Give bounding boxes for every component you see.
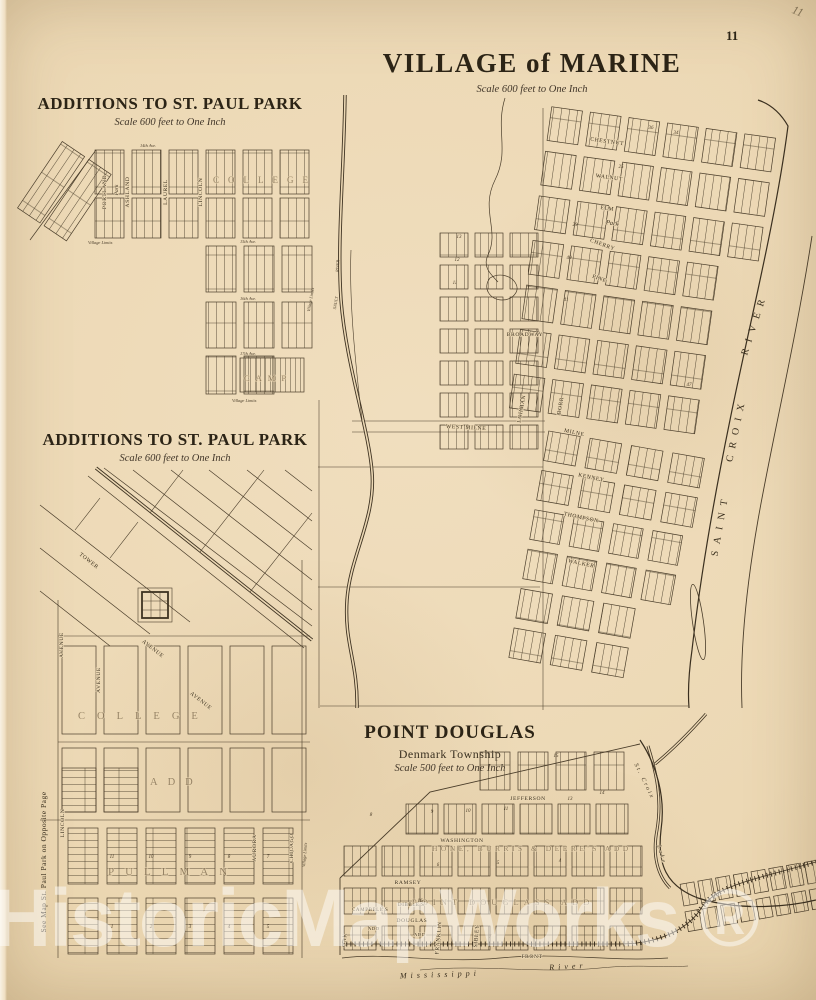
map-block — [695, 173, 730, 211]
label-river: River — [548, 961, 587, 972]
map-block — [619, 485, 656, 520]
street-label-ramsey: RAMSEY — [395, 880, 422, 886]
block-number: 11 — [504, 807, 509, 812]
street-label-jefferson: JEFFERSON — [510, 796, 546, 802]
block-number: 41 — [564, 298, 569, 303]
map-block — [520, 804, 552, 834]
map-block — [518, 752, 548, 790]
label-14th-ave: 14th Ave. — [140, 143, 156, 148]
map-block — [740, 134, 775, 172]
map-block — [510, 297, 538, 321]
block-number: 40 — [567, 256, 573, 261]
plat-blocks-north — [509, 107, 775, 439]
map-block — [243, 150, 272, 194]
map-block — [751, 869, 769, 893]
label-village-limits: Village Limits — [88, 240, 113, 245]
map-block — [244, 302, 274, 348]
map-block — [626, 446, 663, 481]
railroad-track — [340, 95, 373, 708]
map-block — [599, 603, 636, 638]
block-number: 11 — [110, 855, 115, 860]
block-number: 7 — [489, 935, 492, 940]
map-block — [406, 804, 438, 834]
map-block — [703, 906, 720, 928]
map-block — [641, 570, 676, 605]
map-block — [556, 752, 586, 790]
map-block — [593, 340, 628, 378]
map-block — [610, 888, 642, 914]
label-village-limits: Village Limits — [232, 398, 257, 403]
street-label-park: Park — [114, 184, 120, 196]
map-block — [206, 198, 235, 238]
street-label-tower: TOWER — [78, 552, 100, 571]
street-label-avenue: AVENUE — [96, 667, 102, 693]
block-number: 11 — [453, 281, 458, 286]
map-block — [280, 198, 309, 238]
map-block — [230, 748, 264, 812]
map-block — [596, 804, 628, 834]
label-campbells: CAMPBELL'S — [352, 908, 388, 913]
label-pullman: PULLMAN — [108, 866, 238, 878]
label-park: Park — [604, 219, 619, 228]
map-block — [95, 198, 124, 238]
map-block — [547, 107, 582, 145]
map-block — [602, 563, 637, 598]
map-block — [132, 198, 161, 238]
street-label-avenue: AVENUE — [59, 632, 65, 658]
map-block — [280, 150, 309, 194]
map-block — [650, 212, 685, 250]
street-label-lincoln: LINCOLN — [60, 809, 66, 838]
map-block — [444, 804, 476, 834]
label-add: ADD. — [414, 932, 428, 937]
plat-blocks-south — [509, 431, 705, 685]
label-15th-ave: 15th Ave. — [240, 239, 256, 244]
map-block — [668, 453, 705, 488]
map-block — [510, 233, 538, 257]
map-block — [548, 380, 583, 418]
map-block — [610, 926, 642, 950]
map-block — [644, 257, 679, 295]
label-st-croix: St. Croix — [633, 763, 656, 801]
map-block — [608, 524, 643, 559]
map-block — [482, 804, 514, 834]
map-block — [272, 748, 306, 812]
map-block — [475, 329, 503, 353]
map-block — [206, 302, 236, 348]
map-block — [440, 297, 468, 321]
map-block — [272, 646, 306, 734]
building-block — [142, 592, 168, 618]
map-block — [561, 290, 596, 328]
map-block — [537, 470, 574, 505]
map-block — [638, 301, 673, 339]
map-block — [557, 596, 594, 631]
river-name-river: RIVER — [739, 292, 770, 357]
map-block — [605, 251, 640, 289]
river-shore — [342, 956, 668, 960]
map-block — [554, 335, 589, 373]
street-label-portland: PORTLAND — [102, 175, 108, 209]
map-block — [480, 752, 510, 790]
block-number: 34 — [674, 131, 680, 136]
label-17th-ave: 17th Ave. — [240, 351, 256, 356]
street-label-chicago: CHICAGO — [289, 833, 295, 863]
street-label-laurel: LAUREL — [163, 179, 169, 205]
label-point-douglass-add: POINT DOUGLASS ADD — [412, 897, 594, 907]
river-island — [687, 584, 708, 661]
label-mississippi: Mississippi — [399, 969, 480, 981]
map-block — [68, 898, 98, 954]
block-number: 47 — [687, 383, 693, 388]
railroad-label: RIVER — [335, 259, 341, 273]
map-block — [544, 431, 581, 466]
street-label-broadway: BROADWAY — [507, 332, 544, 338]
map-block — [632, 346, 667, 384]
map-additions-mid: 111098712345 TOWER AVENUE AVENUE AVENUE … — [39, 468, 312, 958]
map-additions-top: PORTLAND Park ASHLAND LAUREL LINCOLN COL… — [18, 142, 317, 403]
street-label-aurora: AURORA — [252, 834, 258, 861]
label-college: COLLEGE — [78, 711, 210, 722]
map-block — [720, 903, 737, 925]
map-block — [587, 385, 622, 423]
map-block — [206, 246, 236, 292]
block-number: 10 — [466, 809, 472, 814]
map-block — [716, 876, 734, 900]
map-block — [594, 752, 624, 790]
map-village-marine: CHESTNUT WALNUT ELM Park CHERRY PINE BRO… — [318, 95, 812, 710]
map-block — [244, 246, 274, 292]
label-hone-burris-add: HONE, BURRIS & DEERE'S ADD — [432, 844, 632, 853]
map-block — [657, 168, 692, 206]
map-block — [475, 265, 503, 289]
label-camp: CAMP — [244, 373, 292, 383]
map-block — [475, 233, 503, 257]
map-block — [738, 900, 755, 922]
block-number: 29 — [573, 223, 579, 228]
map-block — [663, 123, 698, 161]
street-label-lincoln: LINCOLN — [198, 178, 204, 207]
map-block — [510, 425, 538, 449]
map-block — [664, 396, 699, 434]
block-number: 13 — [457, 235, 463, 240]
block-number: 25 — [619, 165, 625, 170]
railroad-track — [340, 95, 373, 708]
map-block — [585, 438, 622, 473]
map-block — [648, 531, 683, 566]
map-block — [728, 223, 763, 261]
street-label-oak: OAK — [341, 933, 348, 947]
label-add: ADD — [150, 777, 203, 788]
map-block — [382, 846, 414, 876]
street-label-avenue: AVENUE — [141, 639, 165, 660]
shoreline-east — [742, 236, 812, 708]
street-label-douglas: DOUGLAS — [397, 918, 428, 924]
map-block — [344, 846, 376, 876]
side-note: See Map St. Paul Park on Opposite Page — [39, 791, 48, 932]
map-block — [624, 118, 659, 156]
map-block — [510, 361, 538, 385]
railroad-label: SAULT — [332, 295, 339, 309]
map-block — [661, 492, 698, 527]
label-add: ADD — [368, 926, 380, 931]
map-point-douglas: JEFFERSON WASHINGTON RAMSEY DOUGLAS FRON… — [340, 714, 816, 980]
map-block — [169, 150, 198, 194]
map-block — [206, 356, 236, 394]
street-label-avenue: AVENUE — [189, 691, 213, 712]
map-block — [132, 150, 161, 194]
map-block — [243, 198, 272, 238]
map-block — [169, 198, 198, 238]
map-block — [734, 178, 769, 216]
map-block — [475, 361, 503, 385]
map-block — [676, 307, 711, 345]
map-block — [523, 549, 558, 584]
block-number: 15 — [554, 754, 560, 759]
map-block — [206, 150, 235, 194]
map-block — [440, 233, 468, 257]
map-block — [769, 866, 787, 890]
map-block — [230, 646, 264, 734]
cross-streets — [75, 470, 312, 592]
map-block — [541, 151, 576, 189]
map-block — [509, 628, 546, 663]
map-block — [440, 361, 468, 385]
street-label-ashland: ASHLAND — [125, 177, 131, 208]
map-block — [440, 393, 468, 417]
label-college: COLLEGE — [213, 175, 317, 185]
block-number: 10 — [149, 855, 155, 860]
building-detail — [142, 592, 168, 618]
map-block — [535, 196, 570, 234]
map-block — [599, 296, 634, 334]
map-block — [625, 390, 660, 428]
river-name-saint: SAINT — [710, 492, 732, 557]
block-number: 13 — [568, 797, 574, 802]
map-block — [62, 768, 96, 812]
label-16th-ave: 16th Ave. — [240, 296, 256, 301]
map-block — [282, 246, 312, 292]
block-number: 16 — [418, 899, 424, 904]
map-block — [592, 643, 629, 678]
map-block — [578, 478, 615, 513]
map-block — [683, 262, 718, 300]
map-block — [475, 297, 503, 321]
map-block — [68, 828, 98, 884]
map-block — [558, 804, 590, 834]
block-number: 1 — [111, 925, 114, 930]
label-village-limits: Village Limits — [301, 842, 308, 867]
map-block — [550, 635, 587, 670]
map-block — [756, 897, 773, 919]
map-block — [104, 768, 138, 812]
map-block — [440, 329, 468, 353]
block-number: 14 — [600, 791, 606, 796]
map-block — [510, 265, 538, 289]
map-block — [530, 510, 565, 545]
atlas-maps-canvas: PORTLAND Park ASHLAND LAUREL LINCOLN COL… — [0, 0, 816, 1000]
block-number: 12 — [455, 258, 461, 263]
block-outline — [138, 588, 172, 622]
block-number: 8 — [370, 813, 373, 818]
atlas-page: 11 11 VILLAGE of MARINE Scale 600 feet t… — [0, 0, 816, 1000]
map-block — [475, 393, 503, 417]
map-block — [733, 873, 751, 897]
map-block — [516, 589, 553, 624]
map-block — [809, 888, 816, 910]
map-block — [689, 218, 724, 256]
block-number: 36 — [649, 126, 655, 131]
street-label-front: FRONT — [521, 954, 542, 960]
map-block — [702, 128, 737, 166]
